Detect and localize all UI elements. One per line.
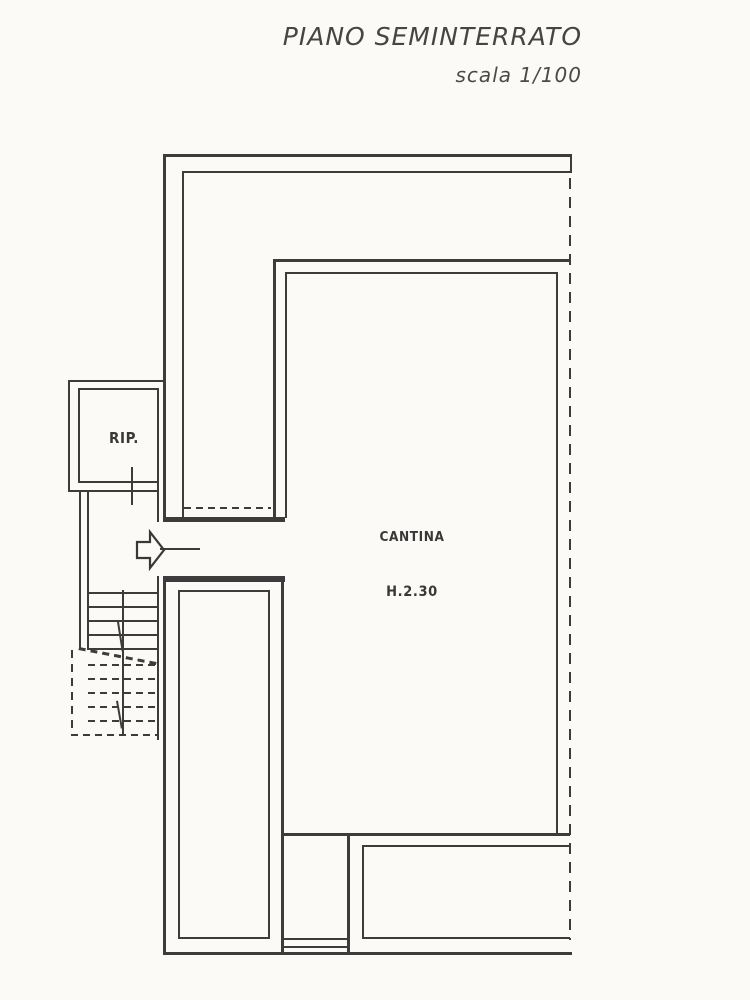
- cantina-wall-outer-top: [273, 259, 571, 262]
- entrance-arrow-icon: [135, 529, 167, 571]
- rip-door-mark: [131, 467, 133, 505]
- projection-dashed-right-edge: [569, 178, 571, 940]
- wall-outer-left-lower: [163, 577, 166, 955]
- narrow-room-wall-inner-top: [178, 590, 270, 592]
- bottom-room-wall-inner-top: [362, 845, 570, 847]
- rip-wall-inner-left: [78, 388, 80, 483]
- overhead-edge-dashed-line: [184, 507, 271, 509]
- wall-outer-left-upper: [163, 154, 166, 522]
- floorplan-canvas: PIANO SEMINTERRATO scala 1/100 CANTINA H…: [0, 0, 750, 1000]
- narrow-room-wall-inner-bottom: [178, 937, 270, 939]
- narrow-room-wall-outer-right: [281, 577, 284, 955]
- bottom-corridor-window-line-2: [284, 946, 347, 948]
- bottom-corridor-window-line-1: [284, 938, 347, 940]
- wall-inner-top: [182, 171, 571, 173]
- rip-wall-outer-bottom: [68, 490, 158, 492]
- room-label-cantina: CANTINA: [368, 529, 456, 545]
- cantina-wall-inner-left: [285, 272, 287, 518]
- cantina-height-label: H.2.30: [374, 584, 450, 600]
- rip-wall-outer-left: [68, 380, 70, 492]
- room-label-rip: RIP.: [94, 429, 154, 447]
- narrow-room-wall-inner-right: [268, 590, 270, 939]
- rip-wall-inner-top: [78, 388, 158, 390]
- stairwell-dashed-left-edge: [71, 650, 73, 735]
- rip-wall-inner-bottom: [78, 481, 158, 483]
- stairwell-wall-left-inner: [87, 491, 89, 650]
- stairwell-wall-left-outer: [79, 491, 81, 650]
- bottom-room-wall-inner-left: [362, 845, 364, 939]
- bottom-room-wall-inner-bottom: [362, 937, 570, 939]
- stair-direction-line: [122, 590, 124, 735]
- rip-wall-outer-top: [68, 380, 163, 382]
- cantina-wall-outer-left: [273, 259, 276, 519]
- plan-scale: scala 1/100: [380, 63, 582, 87]
- annex-wall-right-lower: [157, 576, 159, 740]
- bottom-room-wall-outer-left: [347, 833, 350, 955]
- wall-outer-top: [163, 154, 572, 157]
- plan-title: PIANO SEMINTERRATO: [280, 22, 582, 51]
- entry-corridor-bottom-wall: [163, 576, 285, 582]
- annex-wall-right-upper: [157, 388, 159, 522]
- entry-corridor-top-wall: [163, 517, 285, 522]
- cantina-wall-bottom: [283, 833, 570, 836]
- wall-right-top-stub: [570, 154, 572, 173]
- stairwell-dashed-bottom-edge: [71, 734, 158, 736]
- narrow-room-wall-inner-left: [178, 590, 180, 939]
- wall-inner-left: [182, 171, 184, 518]
- wall-outer-bottom: [163, 952, 572, 955]
- cantina-wall-inner-top: [285, 272, 556, 274]
- cantina-wall-inner-right: [556, 272, 558, 835]
